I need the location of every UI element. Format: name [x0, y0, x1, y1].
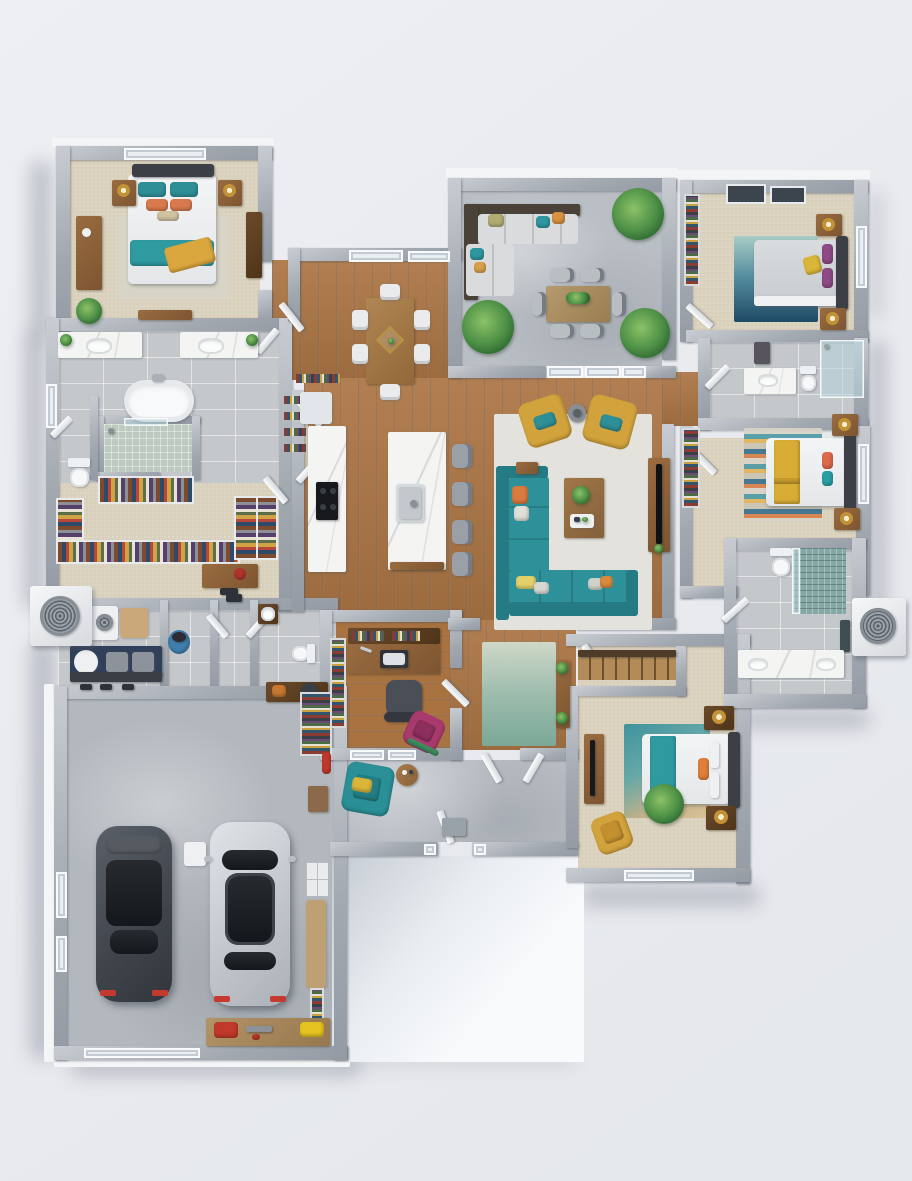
floorplan — [0, 0, 912, 1181]
entry-table-decor — [402, 770, 407, 775]
master-dresser — [76, 216, 102, 290]
dining-chair — [352, 344, 368, 364]
house-shadow-south-bedroom4 — [580, 886, 760, 906]
closet-dresser — [202, 564, 258, 588]
wall-b4-closet-right — [676, 646, 686, 696]
wall-living-bottom-l — [448, 618, 480, 630]
freestanding-tub — [124, 380, 194, 422]
workbench-tools — [246, 1026, 272, 1032]
entry-doormat — [442, 818, 466, 836]
porch-slab — [332, 856, 584, 1062]
bath3-sink — [816, 658, 836, 671]
bath2-toilet-tank — [800, 366, 816, 374]
bath2-shower-head — [824, 344, 829, 349]
wall-bath-right — [279, 318, 292, 612]
roof-trim — [678, 170, 870, 180]
car-suv-mirror — [204, 856, 212, 862]
wall-bath-left — [46, 318, 59, 610]
patio-palm — [620, 308, 670, 358]
sofa-pillow-yellow — [516, 576, 536, 589]
car-sedan-glass — [106, 860, 162, 926]
car-sedan-taillight — [100, 990, 116, 996]
pantry-shelf — [284, 428, 306, 436]
bedroom3-closet-shelf — [684, 430, 698, 506]
bath2-mirror — [754, 342, 770, 364]
shower-floor — [104, 424, 192, 472]
hall-shoes — [226, 594, 242, 602]
car-suv-sunroof — [228, 876, 272, 942]
patio-chair — [532, 292, 546, 316]
sofa-arm-right — [626, 570, 638, 616]
mud-basket — [132, 652, 154, 672]
burner — [320, 488, 326, 494]
car-suv-taillight — [270, 996, 286, 1002]
patio-centerpiece — [566, 292, 590, 304]
office-hutch-books — [392, 631, 420, 641]
master-headboard — [132, 164, 214, 177]
patio-palm — [612, 188, 664, 240]
window-bedroom2-east — [856, 226, 867, 288]
burner — [320, 504, 326, 510]
vanity-left-sink — [86, 338, 112, 354]
bedroom2-pillow-purple — [822, 244, 833, 264]
laundry-clothes — [172, 632, 186, 642]
window-bedroom4-south — [624, 870, 694, 881]
office-bookshelf — [332, 640, 344, 726]
dining-chair — [414, 310, 430, 330]
house-shadow-west-master — [30, 160, 52, 340]
house-shadow-east-bedroom2 — [868, 190, 884, 320]
office-hutch-books — [352, 631, 384, 641]
mud-hamper — [74, 650, 98, 674]
garage-storage-bins — [302, 694, 330, 754]
window-garage-west — [56, 872, 67, 918]
master-media-console — [246, 212, 262, 278]
dining-chair — [380, 384, 400, 400]
bath2-toilet-bowl — [801, 375, 816, 391]
wall-garage-right — [334, 686, 347, 1060]
master-pillow-teal — [138, 182, 166, 197]
closet-rack-bottom — [58, 542, 238, 562]
car-suv-taillight — [214, 996, 230, 1002]
patio-slider — [547, 366, 583, 378]
coffee-plant — [572, 486, 590, 504]
garage-cabinet-tan — [306, 900, 326, 988]
pantry-shelf — [284, 444, 306, 452]
car-sedan-hood — [106, 836, 162, 854]
powder-toilet-tank — [307, 644, 315, 663]
bedroom4-lamp — [712, 710, 726, 724]
burner — [330, 488, 336, 494]
dining-chair — [352, 310, 368, 330]
bath3-art — [840, 620, 850, 652]
window-master-north — [124, 148, 206, 160]
window-garage-west-2 — [56, 936, 67, 972]
bedroom3-runner-fold — [774, 478, 800, 484]
car-suv-rear-window — [224, 952, 276, 970]
bath3-sink — [748, 658, 768, 671]
closet-red-garment — [234, 568, 246, 580]
patio-slider — [585, 366, 621, 378]
wall-patio-bottom-l — [448, 366, 546, 378]
bar-stool — [452, 520, 472, 544]
wall-shower-right — [192, 416, 200, 480]
vanity-plant — [60, 334, 72, 346]
bedroom3-lamp — [840, 512, 853, 525]
patio-pillow-teal — [536, 216, 550, 228]
bath3-toilet-tank — [770, 548, 792, 556]
patio-palm — [462, 300, 514, 354]
workbench-tool-red — [252, 1034, 260, 1040]
master-dresser-decor — [82, 228, 91, 237]
wall-bath3-bottom — [724, 694, 866, 708]
wall-office-top — [320, 610, 462, 622]
window-dining-north — [349, 250, 403, 262]
sofa-pillow-orange — [600, 576, 613, 588]
wall-patio-bottom-r — [644, 366, 676, 378]
workbench-toolbox-red — [214, 1022, 238, 1038]
garage-post — [184, 842, 206, 866]
car-suv-mirror — [288, 856, 296, 862]
garage-cabinet-grid — [306, 862, 328, 896]
house-shadow-west-bath — [24, 330, 46, 610]
mud-shoes — [122, 684, 134, 690]
roof-trim — [446, 168, 678, 178]
master-lamp — [223, 184, 236, 197]
workbench-case-yellow — [300, 1022, 324, 1037]
bedroom2-headboard — [836, 236, 848, 310]
window-bedroom3-east — [858, 444, 869, 504]
entry-console-box — [272, 685, 286, 697]
tub-faucet — [152, 374, 164, 382]
ac-unit-fan — [860, 608, 896, 644]
wall-wc — [90, 396, 98, 480]
wall-powder-left — [250, 600, 258, 688]
sofa-pillow-orange — [512, 486, 528, 504]
window-bath-west — [46, 384, 57, 428]
side-table-decor — [573, 409, 581, 417]
burner — [330, 504, 336, 510]
master-pillow-teal — [170, 182, 198, 197]
bedroom2-pillow-purple — [822, 268, 833, 288]
bedroom4-pillow-white — [710, 772, 719, 798]
tray-decor-green — [582, 517, 588, 522]
closet-rack-right-2 — [258, 498, 276, 558]
bedroom3-headboard — [844, 434, 856, 510]
house-shadow-east — [868, 340, 886, 620]
patio-chair — [580, 324, 604, 338]
mud-shoes — [80, 684, 92, 690]
dining-chair — [380, 284, 400, 300]
bedroom4-lamp — [714, 810, 728, 824]
powder-sink — [261, 607, 275, 621]
closet-rack-top — [100, 478, 192, 502]
patio-pillow-yellow — [474, 262, 486, 273]
hall-console-plant — [556, 712, 568, 724]
window-bedroom2-north — [726, 184, 766, 204]
hall-runner-rug — [482, 642, 556, 746]
bedroom3-pillow-teal — [822, 471, 833, 486]
patio-pillow-orange — [552, 212, 565, 224]
master-plant — [76, 298, 102, 324]
wall-master-left — [56, 146, 70, 332]
shower-head — [108, 428, 114, 434]
bedroom2-bookshelf — [686, 196, 698, 284]
master-bench — [138, 310, 192, 320]
office-laptop-kb — [383, 653, 405, 665]
bedroom2-lamp — [822, 218, 835, 231]
wall-entry-bottom-l — [330, 842, 438, 856]
window-office-south-2 — [388, 750, 416, 760]
bedroom3-runner-yellow — [774, 440, 800, 504]
mud-shoes — [100, 684, 112, 690]
garage-extinguisher — [322, 752, 331, 774]
car-suv-windshield — [222, 850, 278, 870]
master-pillow-accent — [157, 211, 179, 221]
entry-side-table — [396, 764, 418, 786]
bedroom2-bed-foot — [754, 296, 838, 306]
patio-pillow-teal — [470, 248, 484, 260]
entry-plant — [644, 784, 684, 824]
dryer-door — [96, 614, 113, 631]
window-dining-north-2 — [408, 251, 450, 262]
bar-stool — [452, 444, 472, 468]
bedroom4-pillow-white — [710, 742, 719, 768]
car-sedan-taillight — [152, 990, 168, 996]
patio-chair — [580, 268, 604, 282]
bedroom4-pillow-orange — [698, 758, 709, 780]
tv-screen — [656, 464, 662, 544]
front-door-sidelight — [424, 844, 436, 855]
bedroom4-headboard — [728, 732, 740, 808]
mud-bench — [70, 672, 162, 682]
sofa-back-bottom — [509, 602, 633, 616]
laundry-cabinet — [120, 608, 148, 638]
chandelier-plant — [388, 338, 394, 344]
patio-chair — [550, 324, 574, 338]
vanity-right-sink — [198, 338, 224, 354]
tray-decor — [574, 517, 580, 522]
media-decor — [654, 544, 663, 553]
roof-trim — [44, 684, 54, 1062]
island-faucet — [410, 500, 417, 507]
wc-toilet-bowl — [70, 468, 89, 487]
front-door-sidelight — [474, 844, 486, 855]
window-office-south — [350, 750, 384, 760]
garage-pegboard — [308, 786, 328, 812]
patio-chair — [550, 268, 574, 282]
bar-stool — [452, 552, 472, 576]
bedroom4-closet-rail — [578, 650, 676, 657]
wall-patio-left — [448, 178, 461, 378]
sofa-pillow-pattern — [534, 582, 549, 594]
master-pillow-orange — [170, 199, 192, 211]
bath2-sink — [758, 374, 778, 387]
bath3-shower-glass — [792, 548, 800, 614]
dining-chair — [414, 344, 430, 364]
bath3-shower — [794, 548, 846, 614]
wc-toilet-tank — [68, 458, 90, 467]
vanity-plant — [246, 334, 258, 346]
sofa-back-left — [496, 474, 509, 620]
bedroom4-tv — [590, 740, 595, 796]
wall-bedroom4-top — [566, 634, 750, 646]
hall-console-plant — [556, 662, 568, 674]
sofa-pillow-pattern — [514, 506, 529, 521]
shower-glass — [124, 418, 168, 426]
patio-pillow-olive — [488, 214, 504, 227]
entry-table-decor — [409, 770, 413, 774]
wall-entry-bottom-r — [472, 842, 578, 856]
patio-chair — [612, 292, 626, 316]
bedroom3-pillow-coral — [822, 452, 833, 469]
bedroom3-lamp — [838, 418, 851, 431]
hall-bookshelf — [296, 374, 340, 383]
sofa-side-tray — [516, 462, 538, 474]
ac-unit-fan — [40, 596, 80, 636]
closet-rack-right — [236, 498, 256, 558]
master-lamp — [117, 184, 130, 197]
bedroom2-lamp — [826, 312, 839, 325]
garage-door — [84, 1048, 200, 1058]
window-bedroom2-north-2 — [770, 186, 806, 204]
bath3-toilet-bowl — [772, 558, 790, 576]
mud-basket — [106, 652, 128, 672]
bar-stool — [452, 482, 472, 506]
kitchen-fridge — [300, 392, 332, 424]
master-pillow-orange — [146, 199, 168, 211]
house-shadow-south-bath3 — [740, 710, 870, 728]
island-base — [390, 562, 444, 570]
wall-b4-closet-bottom — [578, 686, 686, 696]
patio-slider — [622, 366, 646, 378]
car-sedan-rear-window — [110, 930, 158, 954]
